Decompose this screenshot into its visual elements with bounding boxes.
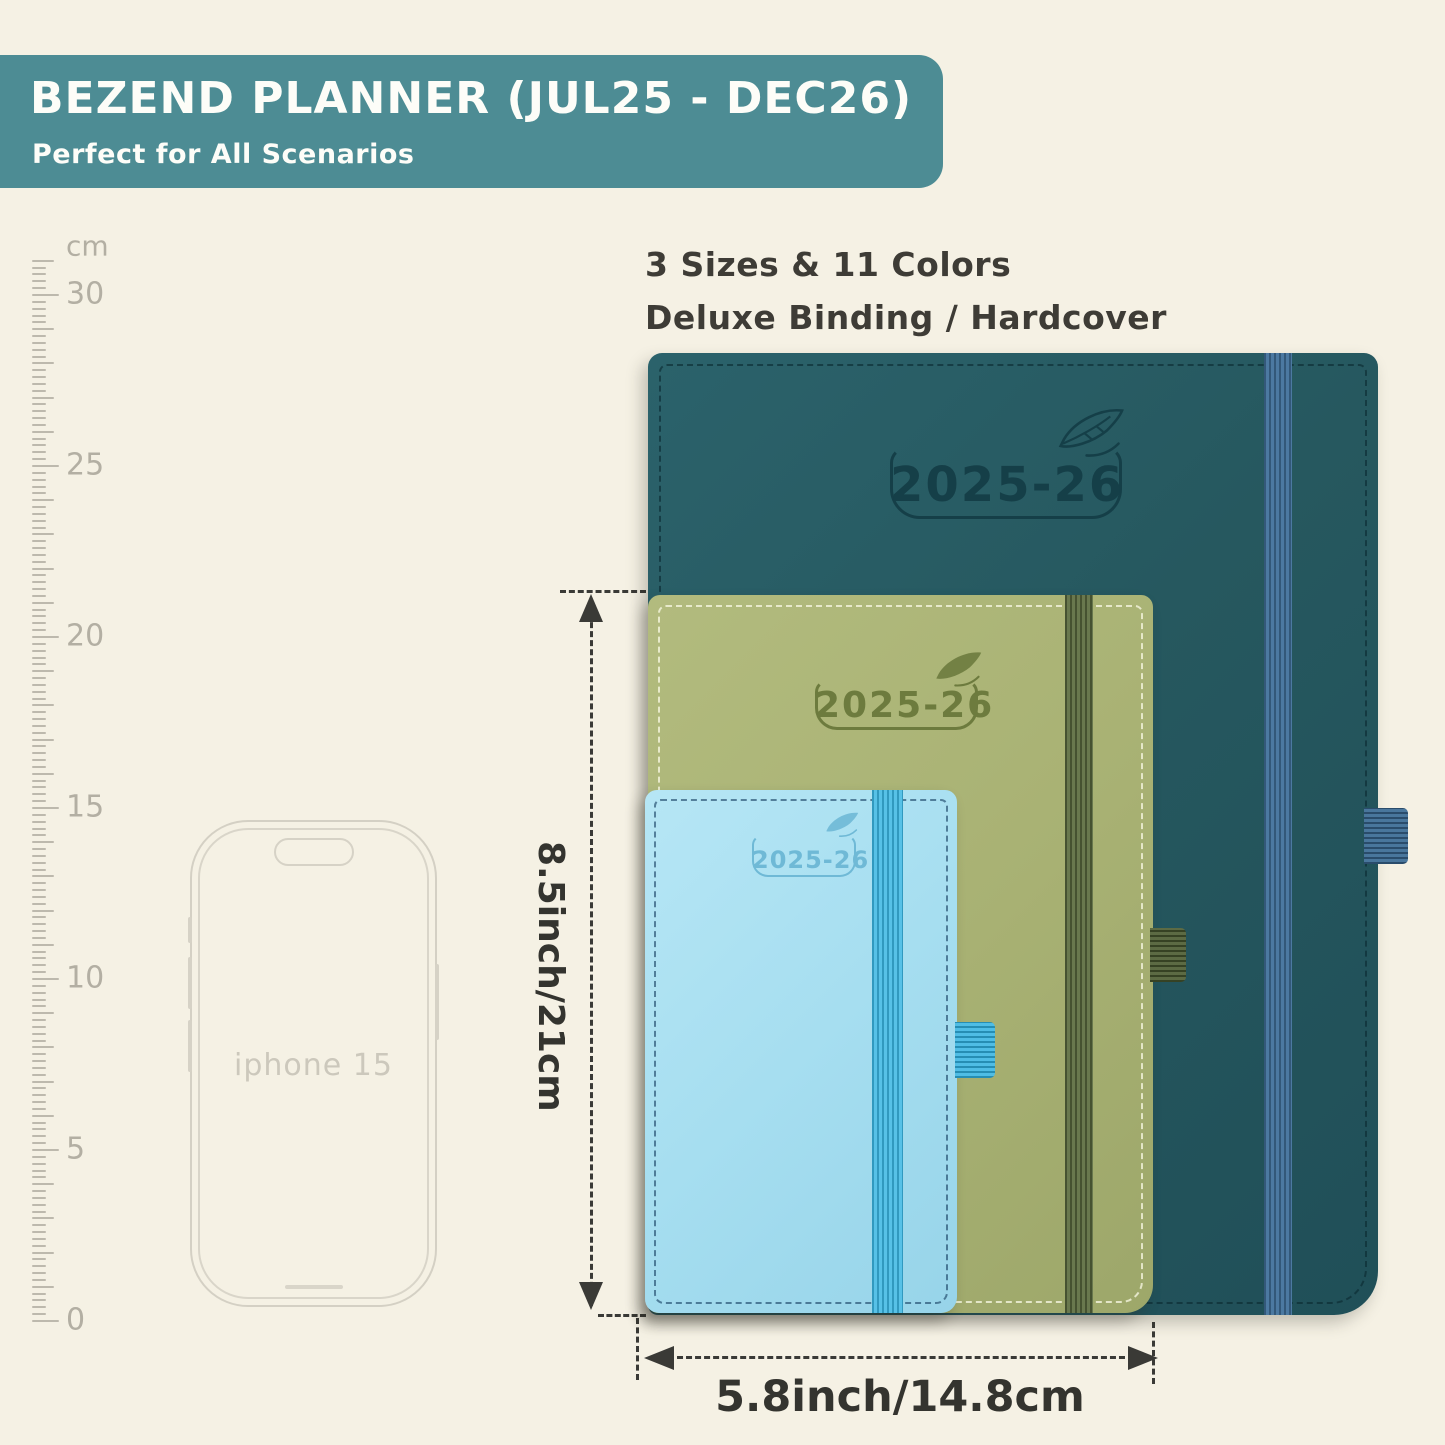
- width-dim-arrow-left: [644, 1346, 674, 1370]
- ruler-tick: [32, 848, 46, 850]
- ruler-tick: [32, 527, 46, 529]
- ruler-tick: [32, 698, 46, 700]
- ruler-tick: [32, 1087, 46, 1089]
- width-dim-left-boundary: [636, 1318, 639, 1380]
- feature-line-sizes: 3 Sizes & 11 Colors: [645, 238, 1167, 291]
- year-logo: 2025-26: [890, 447, 1122, 519]
- ruler-tick: [32, 1081, 54, 1083]
- product-title: BEZEND PLANNER (JUL25 - DEC26): [30, 73, 912, 124]
- ruler-tick: [32, 766, 46, 768]
- ruler-tick: [32, 1279, 46, 1281]
- ruler-unit-label: cm: [66, 230, 109, 263]
- ruler-tick: [32, 328, 54, 330]
- ruler-tick: [32, 486, 46, 488]
- ruler-tick: [32, 650, 46, 652]
- ruler-tick: [32, 780, 46, 782]
- ruler-tick: [32, 855, 46, 857]
- ruler-tick: [32, 711, 46, 713]
- ruler-tick: [32, 533, 54, 535]
- height-dim-arrow-up: [579, 594, 603, 622]
- ruler-tick: [32, 732, 46, 734]
- ruler-tick: [32, 745, 46, 747]
- elastic-band: [1065, 595, 1093, 1313]
- ruler-tick: [32, 691, 46, 693]
- ruler-tick: [32, 1115, 54, 1117]
- ruler-tick: [32, 1142, 46, 1144]
- ruler-tick: [32, 451, 46, 453]
- ruler-tick: [32, 657, 46, 659]
- ruler-tick: [32, 1101, 46, 1103]
- planner-small-blue: 2025-26: [645, 790, 957, 1313]
- ruler-tick: [32, 1252, 54, 1254]
- ruler-tick: [32, 916, 46, 918]
- ruler-tick: [32, 547, 46, 549]
- ruler-tick: [32, 704, 54, 706]
- ruler-tick: [32, 930, 46, 932]
- ruler-tick: [32, 574, 46, 576]
- ruler-tick: [32, 1122, 46, 1124]
- ruler-tick: [32, 793, 46, 795]
- product-infographic: BEZEND PLANNER (JUL25 - DEC26) Perfect f…: [0, 0, 1445, 1445]
- ruler-tick: [32, 944, 54, 946]
- ruler-tick: [32, 1019, 46, 1021]
- ruler-tick: [32, 677, 46, 679]
- ruler-tick: [32, 342, 46, 344]
- ruler-label-5: 5: [66, 1132, 85, 1167]
- ruler-tick: [32, 622, 46, 624]
- ruler-tick: [32, 889, 46, 891]
- iphone-bottom-port: [285, 1285, 343, 1289]
- ruler-tick: [32, 670, 54, 672]
- ruler-tick: [32, 506, 46, 508]
- ruler-tick: [32, 1026, 46, 1028]
- width-dim-label: 5.8inch/14.8cm: [695, 1372, 1105, 1422]
- ruler-tick: [32, 458, 46, 460]
- ruler-tick: [32, 937, 46, 939]
- ruler-tick: [32, 752, 46, 754]
- ruler-tick: [32, 821, 46, 823]
- feather-icon: [1048, 407, 1130, 459]
- iphone-power-button: [435, 964, 439, 1040]
- ruler-tick: [32, 1053, 46, 1055]
- ruler-label-30: 30: [66, 277, 104, 312]
- ruler-tick: [32, 1197, 46, 1199]
- ruler-tick: [32, 759, 46, 761]
- ruler-tick: [32, 273, 46, 275]
- ruler-tick: [32, 862, 46, 864]
- ruler-tick: [32, 369, 46, 371]
- ruler-tick: [32, 814, 46, 816]
- ruler-tick: [32, 1128, 46, 1130]
- height-dim-line: [590, 604, 593, 1306]
- width-dim-arrow-right: [1128, 1346, 1158, 1370]
- ruler-tick: [32, 684, 46, 686]
- ruler-tick: [32, 1149, 59, 1151]
- feature-line-binding: Deluxe Binding / Hardcover: [645, 291, 1167, 344]
- ruler-tick: [32, 301, 46, 303]
- ruler-tick: [32, 444, 46, 446]
- ruler-tick: [32, 992, 46, 994]
- ruler-tick: [32, 800, 46, 802]
- ruler-tick: [32, 882, 46, 884]
- ruler-label-10: 10: [66, 961, 104, 996]
- ruler-tick: [32, 1033, 46, 1035]
- height-dim-bottom-tick: [598, 1314, 646, 1317]
- ruler-tick: [32, 1170, 46, 1172]
- ruler-label-15: 15: [66, 790, 104, 825]
- ruler-tick: [32, 561, 46, 563]
- ruler-tick: [32, 957, 46, 959]
- ruler-tick: [32, 978, 59, 980]
- ruler-tick: [32, 492, 46, 494]
- ruler-tick: [32, 1040, 46, 1042]
- elastic-band: [872, 790, 903, 1313]
- ruler-tick: [32, 554, 46, 556]
- ruler-tick: [32, 479, 46, 481]
- ruler-tick: [32, 513, 46, 515]
- ruler-label-25: 25: [66, 448, 104, 483]
- cm-ruler: cm051015202530: [32, 0, 142, 1445]
- ruler-tick: [32, 896, 46, 898]
- ruler-tick: [32, 1238, 46, 1240]
- year-text: 2025-26: [890, 457, 1090, 513]
- ruler-tick: [32, 739, 54, 741]
- ruler-tick: [32, 390, 46, 392]
- feather-icon: [927, 650, 987, 688]
- ruler-tick: [32, 260, 54, 262]
- ruler-tick: [32, 1108, 46, 1110]
- ruler-tick: [32, 1258, 46, 1260]
- ruler-tick: [32, 588, 46, 590]
- ruler-tick: [32, 985, 46, 987]
- ruler-tick: [32, 1156, 46, 1158]
- ruler-tick: [32, 786, 46, 788]
- ruler-tick: [32, 1046, 54, 1048]
- ruler-tick: [32, 1272, 46, 1274]
- ruler-tick: [32, 643, 46, 645]
- ruler-tick: [32, 1265, 46, 1267]
- ruler-tick: [32, 903, 46, 905]
- ruler-tick: [32, 376, 46, 378]
- iphone-volume-up-button: [188, 957, 192, 1009]
- ruler-tick: [32, 834, 46, 836]
- ruler-tick: [32, 540, 46, 542]
- ruler-tick: [32, 1224, 46, 1226]
- ruler-tick: [32, 636, 59, 638]
- ruler-tick: [32, 1320, 59, 1322]
- pen-loop: [1150, 928, 1186, 982]
- ruler-tick: [32, 1313, 46, 1315]
- ruler-tick: [32, 397, 54, 399]
- ruler-tick: [32, 1094, 46, 1096]
- ruler-tick: [32, 1245, 46, 1247]
- ruler-tick: [32, 609, 46, 611]
- ruler-tick: [32, 1005, 46, 1007]
- ruler-tick: [32, 1204, 46, 1206]
- ruler-tick: [32, 294, 59, 296]
- feather-icon: [820, 811, 862, 838]
- ruler-tick: [32, 951, 46, 953]
- ruler-tick: [32, 1183, 54, 1185]
- pen-loop: [1364, 808, 1408, 864]
- ruler-tick: [32, 1163, 46, 1165]
- ruler-tick: [32, 403, 46, 405]
- ruler-tick: [32, 725, 46, 727]
- ruler-tick: [32, 718, 46, 720]
- ruler-tick: [32, 875, 54, 877]
- ruler-tick: [32, 629, 46, 631]
- ruler-tick: [32, 964, 46, 966]
- ruler-tick: [32, 308, 46, 310]
- feature-text: 3 Sizes & 11 Colors Deluxe Binding / Har…: [645, 238, 1167, 344]
- ruler-tick: [32, 1286, 54, 1288]
- ruler-tick: [32, 581, 46, 583]
- ruler-tick: [32, 807, 59, 809]
- ruler-tick: [32, 595, 46, 597]
- year-logo: 2025-26: [815, 680, 978, 730]
- ruler-tick: [32, 841, 54, 843]
- ruler-tick: [32, 410, 46, 412]
- ruler-tick: [32, 910, 54, 912]
- ruler-tick: [32, 1231, 46, 1233]
- iphone-outline: iphone 15: [190, 820, 437, 1307]
- ruler-tick: [32, 335, 46, 337]
- ruler-tick: [32, 869, 46, 871]
- ruler-tick: [32, 828, 46, 830]
- ruler-tick: [32, 431, 54, 433]
- ruler-tick: [32, 1060, 46, 1062]
- ruler-tick: [32, 472, 46, 474]
- height-dim-label: 8.5inch/21cm: [531, 841, 571, 1071]
- ruler-tick: [32, 321, 46, 323]
- width-dim-line: [668, 1356, 1134, 1359]
- ruler-tick: [32, 499, 54, 501]
- ruler-tick: [32, 362, 54, 364]
- ruler-tick: [32, 1074, 46, 1076]
- ruler-tick: [32, 417, 46, 419]
- ruler-tick: [32, 663, 46, 665]
- ruler-label-20: 20: [66, 619, 104, 654]
- ruler-tick: [32, 424, 46, 426]
- ruler-tick: [32, 1067, 46, 1069]
- ruler-tick: [32, 1299, 46, 1301]
- ruler-tick: [32, 280, 46, 282]
- ruler-tick: [32, 602, 54, 604]
- iphone-label: iphone 15: [192, 1048, 435, 1083]
- ruler-tick: [32, 315, 46, 317]
- ruler-label-0: 0: [66, 1303, 85, 1338]
- ruler-tick: [32, 1190, 46, 1192]
- ruler-tick: [32, 438, 46, 440]
- ruler-tick: [32, 1293, 46, 1295]
- ruler-tick: [32, 267, 46, 269]
- year-logo: 2025-26: [752, 835, 856, 877]
- ruler-tick: [32, 971, 46, 973]
- ruler-tick: [32, 349, 46, 351]
- ruler-tick: [32, 923, 46, 925]
- ruler-tick: [32, 1176, 46, 1178]
- ruler-tick: [32, 1135, 46, 1137]
- pen-loop: [955, 1022, 995, 1078]
- ruler-tick: [32, 1211, 46, 1213]
- ruler-tick: [32, 999, 46, 1001]
- iphone-volume-down-button: [188, 1020, 192, 1072]
- ruler-tick: [32, 356, 46, 358]
- ruler-tick: [32, 383, 46, 385]
- iphone-mute-switch: [188, 917, 192, 943]
- year-text: 2025-26: [752, 846, 841, 874]
- ruler-tick: [32, 520, 46, 522]
- ruler-tick: [32, 465, 59, 467]
- ruler-tick: [32, 287, 46, 289]
- height-dim-arrow-down: [579, 1282, 603, 1310]
- ruler-tick: [32, 1217, 54, 1219]
- ruler-tick: [32, 1306, 46, 1308]
- ruler-tick: [32, 568, 54, 570]
- ruler-tick: [32, 615, 46, 617]
- year-text: 2025-26: [815, 685, 955, 726]
- elastic-band: [1264, 353, 1292, 1315]
- ruler-tick: [32, 1012, 54, 1014]
- dynamic-island: [274, 838, 354, 866]
- ruler-tick: [32, 773, 54, 775]
- height-dim-top-tick: [560, 590, 646, 593]
